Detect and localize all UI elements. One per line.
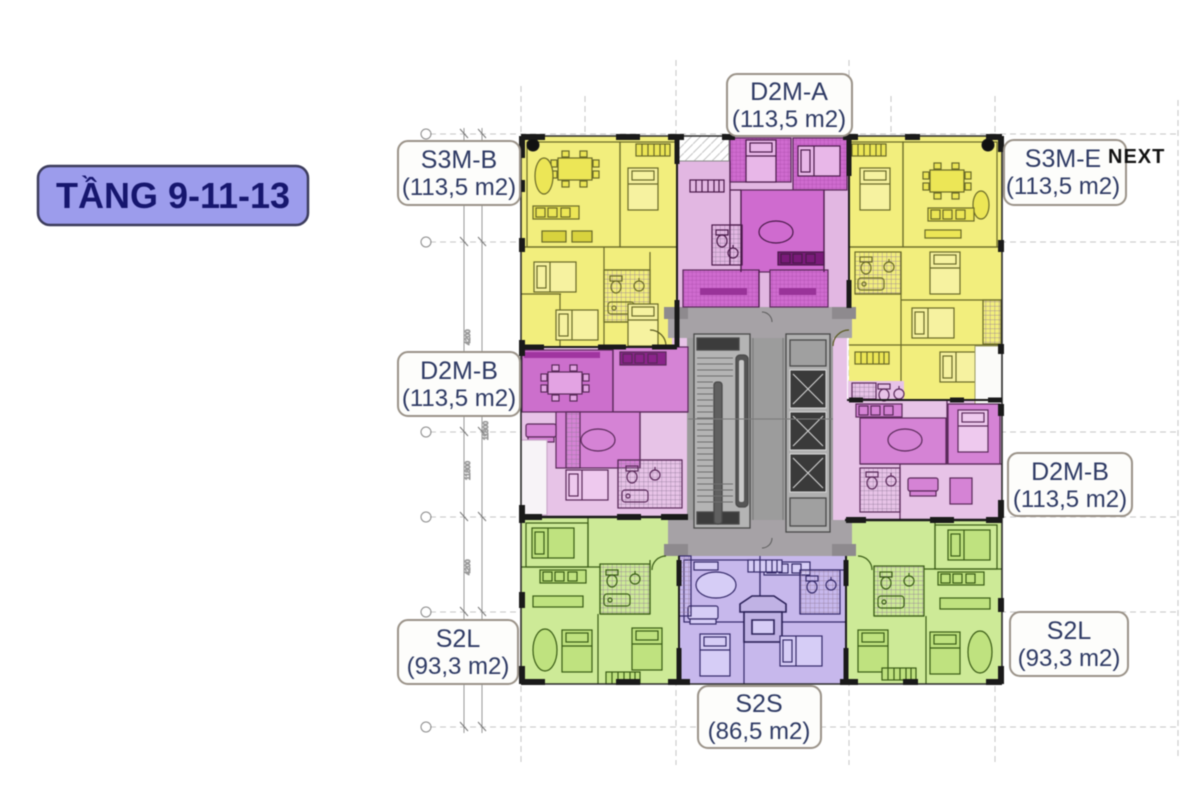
svg-text:(93,3 m2): (93,3 m2) bbox=[407, 653, 510, 680]
svg-text:D2M-B: D2M-B bbox=[420, 357, 498, 385]
svg-text:S2L: S2L bbox=[436, 625, 481, 653]
svg-text:4200: 4200 bbox=[465, 559, 472, 575]
svg-text:(93,3 m2): (93,3 m2) bbox=[1018, 645, 1121, 672]
svg-text:(113,5 m2): (113,5 m2) bbox=[402, 385, 516, 412]
svg-text:(113,5 m2): (113,5 m2) bbox=[402, 174, 516, 201]
svg-text:D2M-A: D2M-A bbox=[750, 78, 828, 106]
svg-text:S3M-E: S3M-E bbox=[1025, 145, 1101, 173]
svg-text:(86,5 m2): (86,5 m2) bbox=[708, 718, 811, 745]
svg-text:(113,5 m2): (113,5 m2) bbox=[732, 106, 846, 133]
svg-text:NEXT: NEXT bbox=[1108, 146, 1165, 168]
svg-text:S2L: S2L bbox=[1047, 617, 1092, 645]
svg-text:S2S: S2S bbox=[735, 690, 782, 718]
svg-text:(113,5 m2): (113,5 m2) bbox=[1006, 173, 1120, 200]
svg-text:S3M-B: S3M-B bbox=[421, 146, 497, 174]
svg-text:11800: 11800 bbox=[483, 421, 490, 440]
svg-text:(113,5 m2): (113,5 m2) bbox=[1013, 486, 1127, 513]
svg-text:4200: 4200 bbox=[465, 329, 472, 345]
svg-text:D2M-B: D2M-B bbox=[1031, 458, 1109, 486]
svg-text:TẦNG 9-11-13: TẦNG 9-11-13 bbox=[56, 175, 290, 216]
svg-text:11800: 11800 bbox=[465, 461, 472, 480]
